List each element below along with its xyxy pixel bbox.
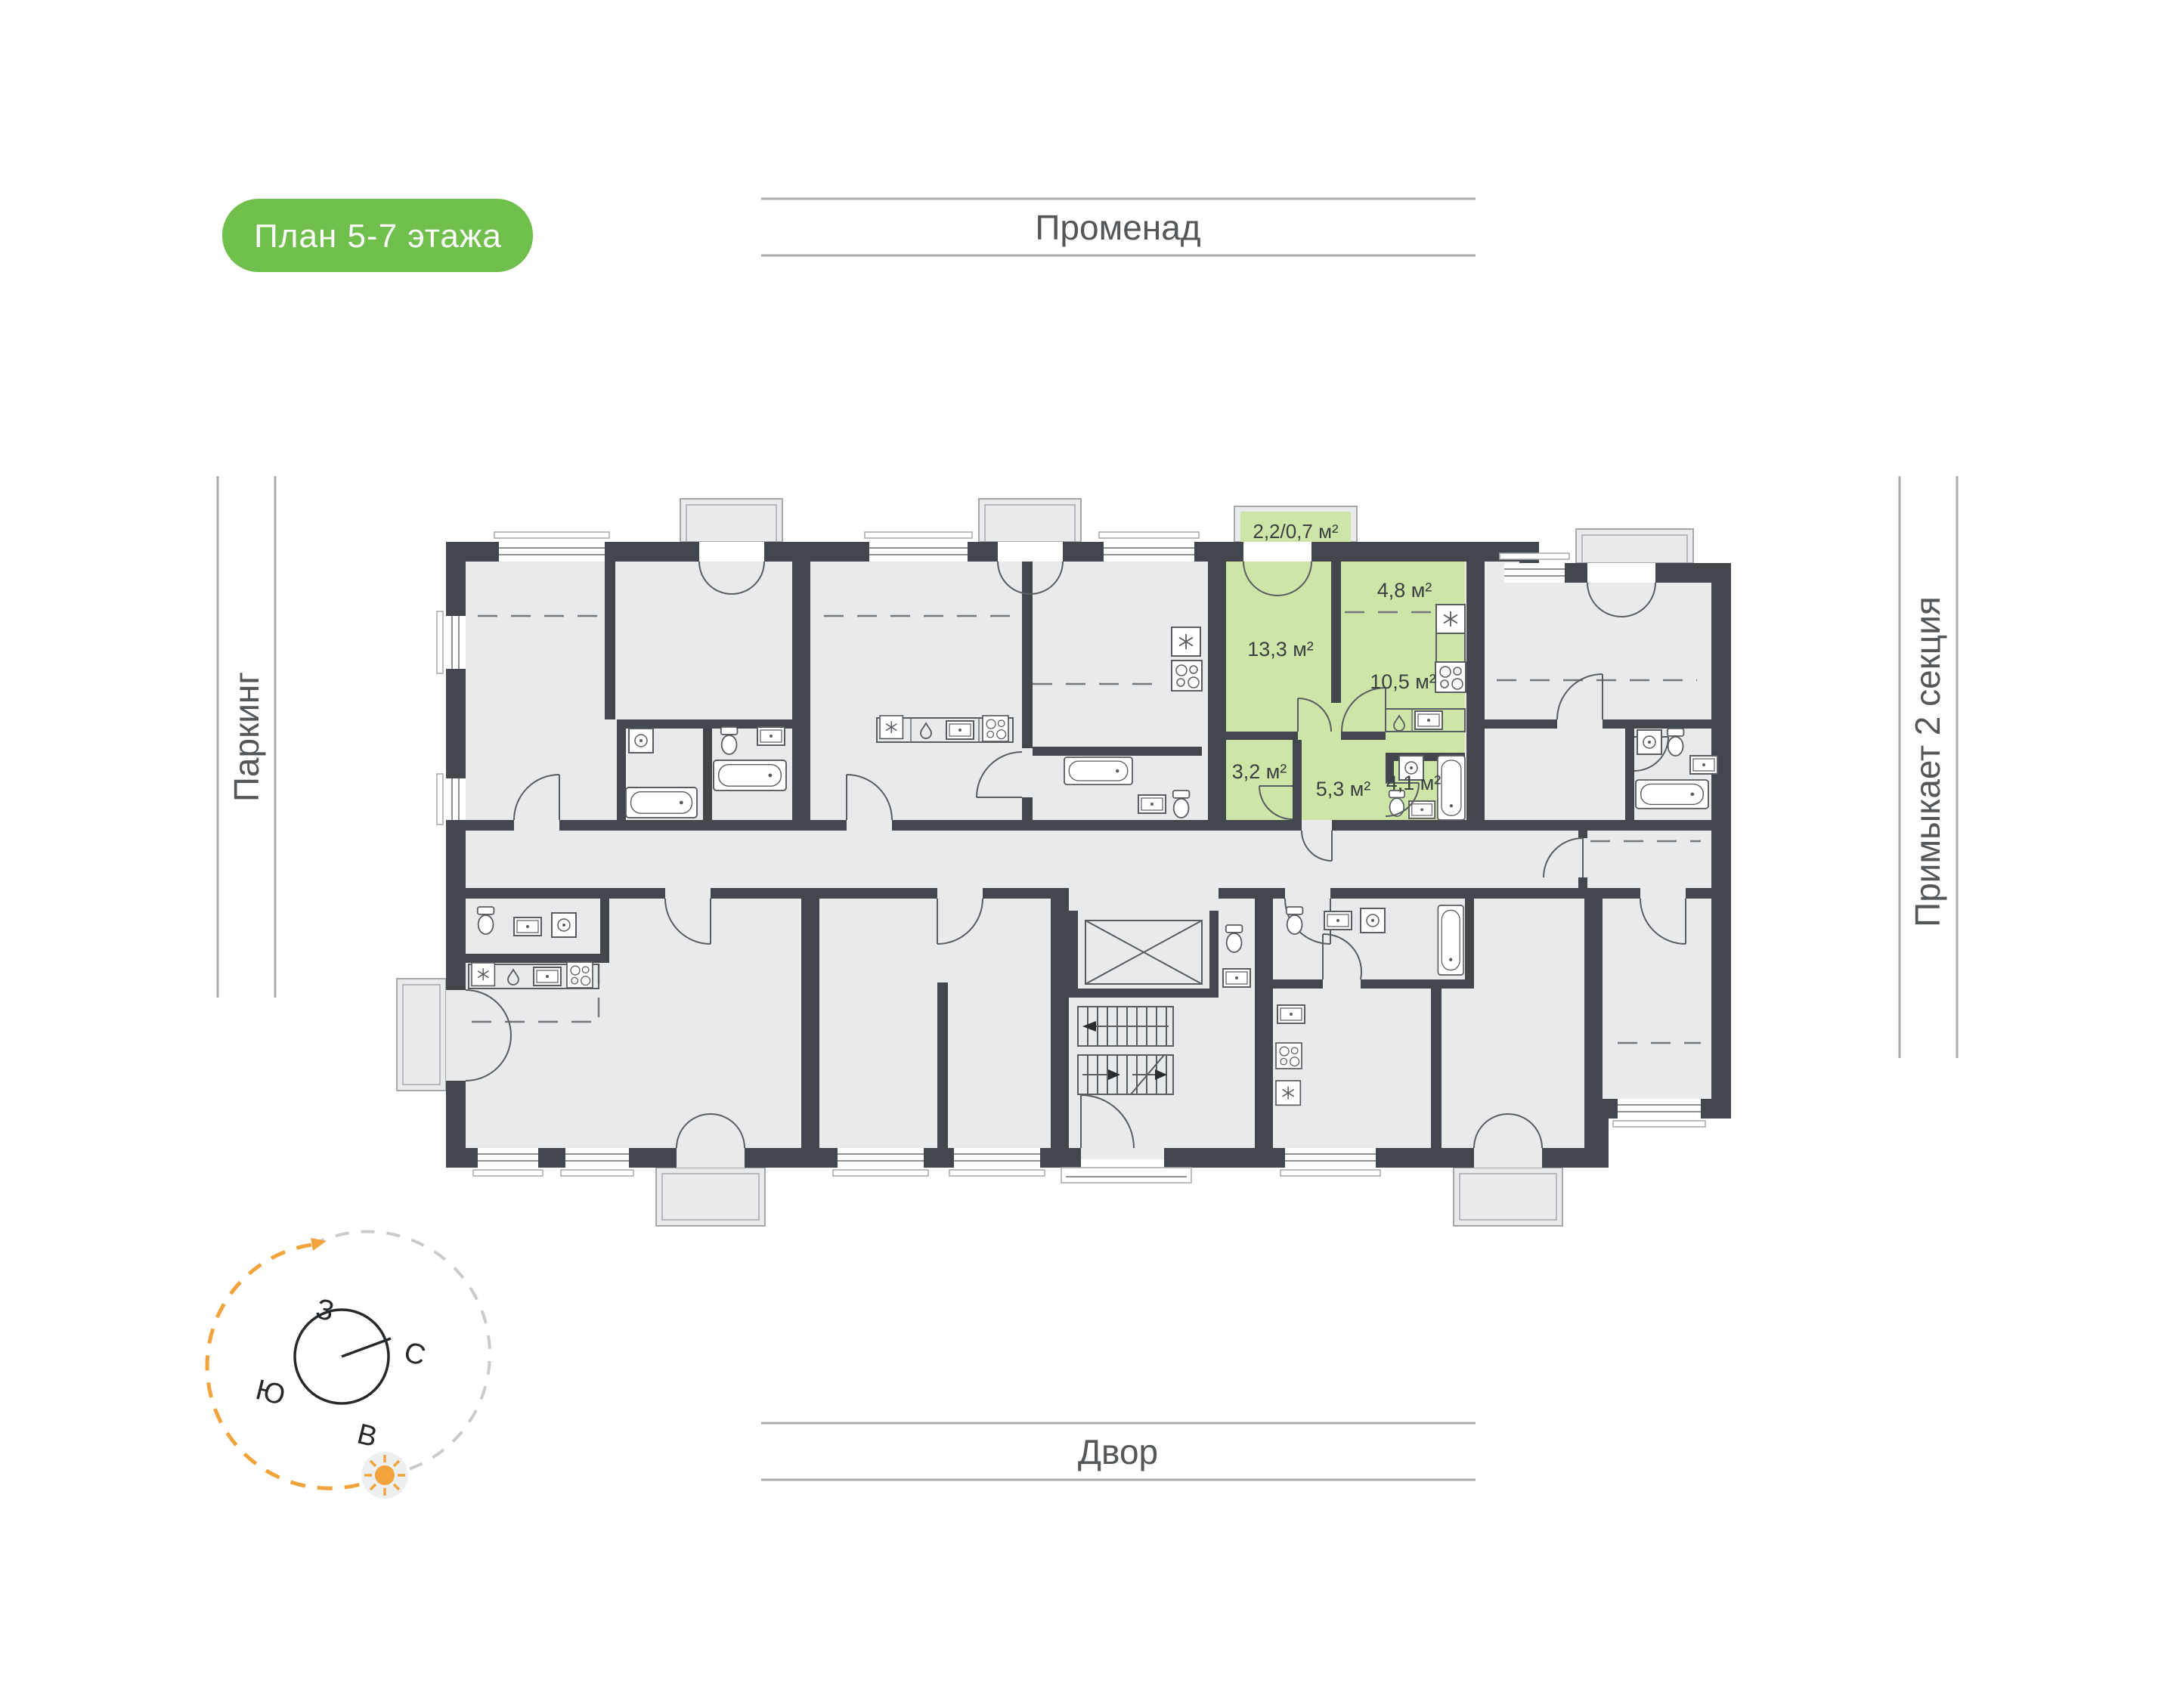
window bbox=[1280, 1148, 1380, 1176]
toilet-icon bbox=[1287, 907, 1303, 934]
room-label-kitchen: 10,5 м² bbox=[1370, 670, 1436, 693]
compass-north: С bbox=[401, 1336, 429, 1372]
stove-icon bbox=[983, 716, 1008, 741]
window bbox=[949, 1148, 1045, 1176]
sun-icon bbox=[364, 1455, 405, 1496]
building bbox=[397, 499, 1731, 1226]
fridge-icon bbox=[880, 716, 903, 738]
balcony-bottom-1 bbox=[656, 1168, 765, 1226]
stove-icon bbox=[1172, 661, 1202, 691]
sink-icon bbox=[1223, 969, 1250, 987]
window bbox=[1500, 553, 1569, 583]
washer-icon bbox=[552, 913, 576, 937]
washer-icon bbox=[1637, 730, 1661, 754]
sink-icon bbox=[1324, 911, 1352, 930]
floor-badge-label: План 5-7 этажа bbox=[254, 218, 502, 255]
stove-icon bbox=[567, 962, 593, 988]
balcony-top-right bbox=[1576, 529, 1693, 563]
toilet-icon bbox=[1226, 925, 1243, 952]
window bbox=[473, 1148, 543, 1176]
bathtub-icon bbox=[714, 760, 786, 791]
room-label-dress: 3,2 м² bbox=[1232, 760, 1287, 783]
compass-east: В bbox=[354, 1419, 380, 1454]
balcony-bottom-2 bbox=[1454, 1168, 1562, 1226]
sink-icon bbox=[1409, 801, 1435, 818]
washer-icon bbox=[1361, 908, 1385, 933]
room-label-loggia: 2,2/0,7 м² bbox=[1253, 520, 1339, 543]
sink-icon bbox=[1138, 795, 1166, 813]
window bbox=[1099, 532, 1199, 562]
bathtub-icon bbox=[626, 787, 697, 818]
street-parking: Паркинг bbox=[218, 476, 275, 998]
room-label-hall: 5,3 м² bbox=[1316, 778, 1371, 800]
balcony-left bbox=[397, 979, 446, 1091]
window bbox=[865, 532, 972, 562]
street-dvor: Двор bbox=[761, 1423, 1476, 1480]
window bbox=[437, 611, 466, 673]
fridge-icon bbox=[472, 963, 494, 986]
compass-south: Ю bbox=[252, 1374, 288, 1412]
sink-icon bbox=[757, 727, 785, 745]
window bbox=[833, 1148, 928, 1176]
bathtub-icon bbox=[1438, 905, 1463, 975]
sink-icon bbox=[946, 721, 974, 739]
sink-icon bbox=[514, 917, 541, 936]
floor-plan-svg: Променад Двор Паркинг Примыкает 2 секция… bbox=[0, 0, 2177, 1708]
promenade-label: Променад bbox=[1035, 208, 1200, 247]
dvor-label: Двор bbox=[1078, 1432, 1158, 1471]
room-label-living: 13,3 м² bbox=[1247, 638, 1314, 661]
entrance-porch bbox=[1061, 1168, 1191, 1183]
fridge-icon bbox=[1436, 605, 1465, 633]
stove-icon bbox=[1276, 1043, 1302, 1069]
sink-icon bbox=[534, 967, 561, 986]
parking-label: Паркинг bbox=[227, 672, 266, 802]
street-section2: Примыкает 2 секция bbox=[1900, 476, 1957, 1058]
toilet-icon bbox=[1668, 729, 1684, 756]
window bbox=[494, 532, 609, 562]
bathtub-icon bbox=[1636, 780, 1708, 809]
sink-icon bbox=[1415, 711, 1442, 729]
bathtub-icon bbox=[1438, 756, 1465, 820]
window bbox=[437, 774, 466, 825]
compass: З С Ю В bbox=[207, 1232, 490, 1499]
street-promenade: Променад bbox=[761, 199, 1476, 255]
washer-icon bbox=[629, 729, 653, 753]
toilet-icon bbox=[1173, 791, 1190, 818]
floor-badge: План 5-7 этажа bbox=[222, 199, 533, 272]
floor-plan-page: Променад Двор Паркинг Примыкает 2 секция… bbox=[0, 0, 2177, 1708]
room-label-niche: 4,8 м² bbox=[1377, 579, 1432, 602]
sink-icon bbox=[1277, 1005, 1305, 1023]
window bbox=[1613, 1099, 1705, 1127]
room-label-bath: 4,1 м² bbox=[1386, 772, 1442, 794]
fridge-icon bbox=[1172, 627, 1200, 656]
stove-icon bbox=[1435, 662, 1466, 692]
toilet-icon bbox=[478, 907, 494, 934]
section2-label: Примыкает 2 секция bbox=[1908, 596, 1947, 927]
window bbox=[561, 1148, 633, 1176]
toilet-icon bbox=[721, 727, 738, 754]
sink-icon bbox=[1690, 756, 1717, 774]
bathtub-icon bbox=[1064, 757, 1132, 784]
fridge-icon bbox=[1276, 1081, 1300, 1105]
